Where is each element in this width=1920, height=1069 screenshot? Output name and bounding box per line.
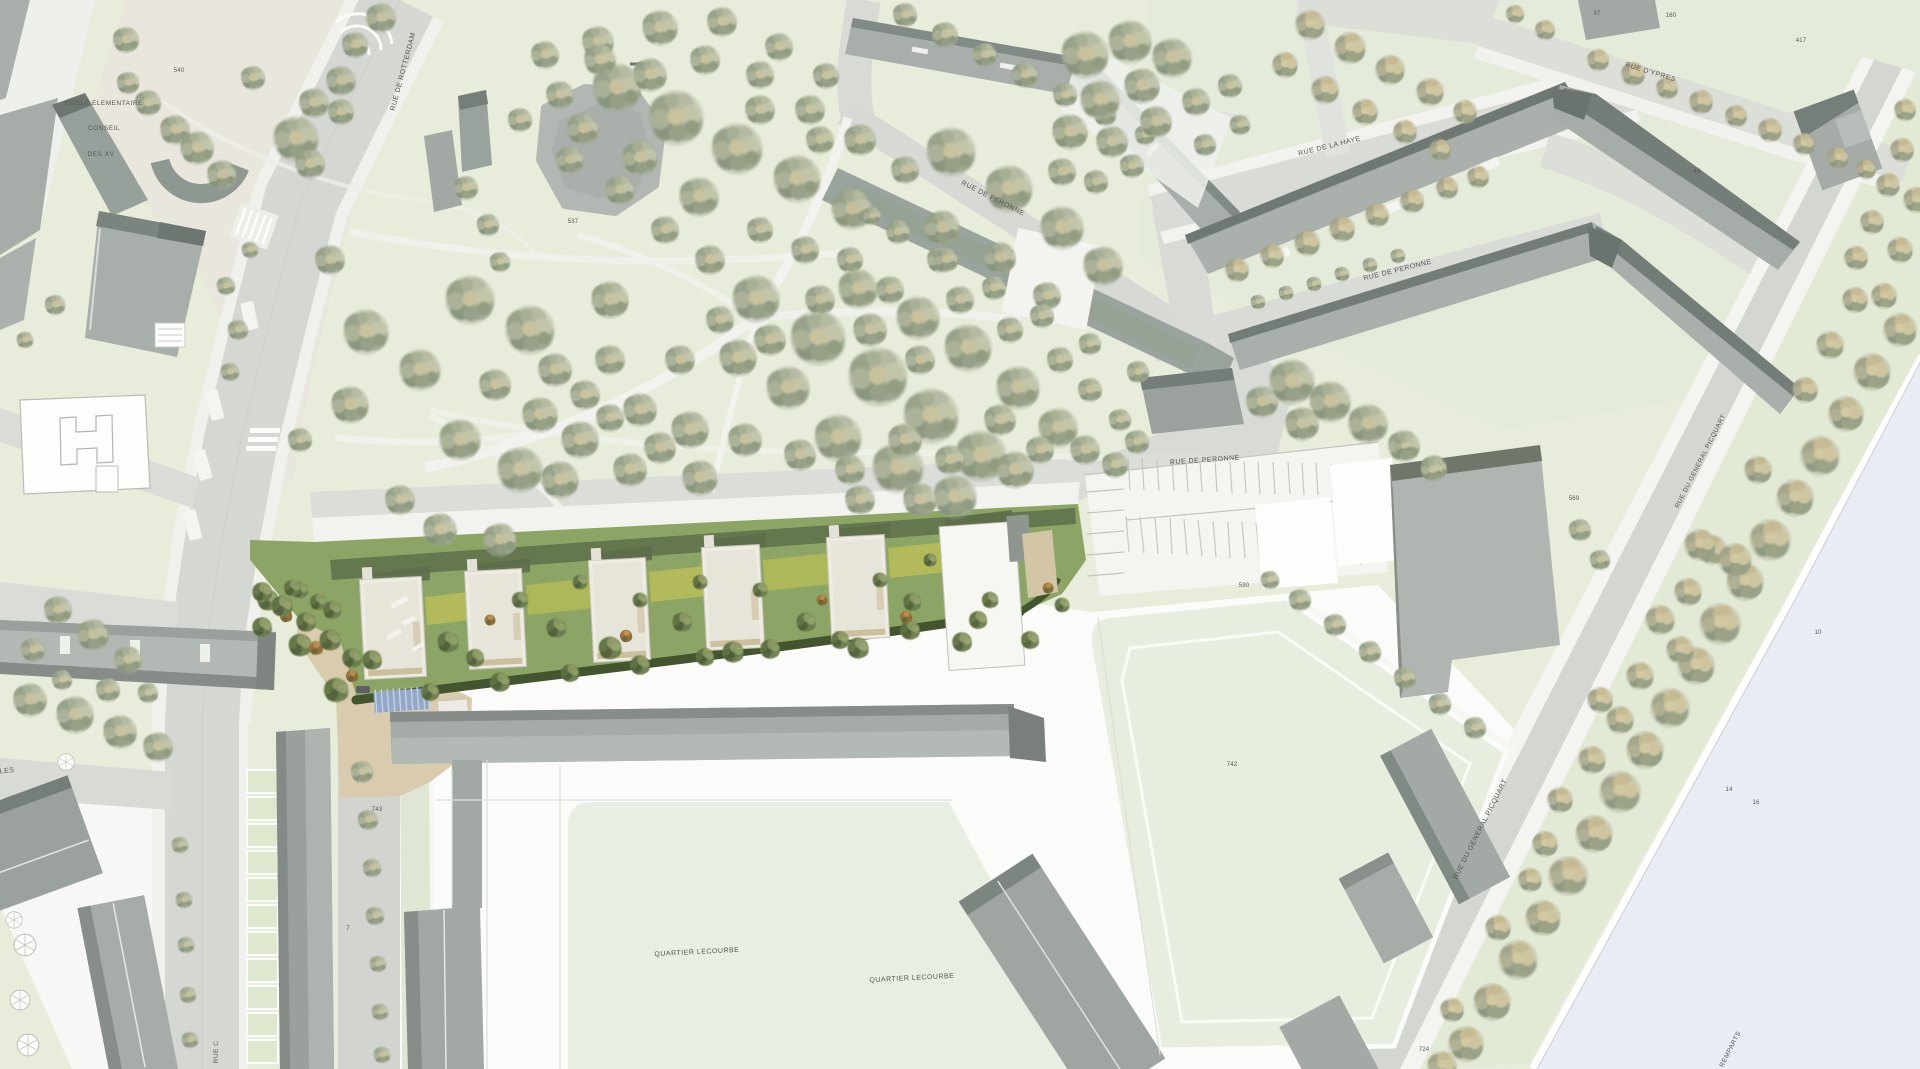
svg-text:16: 16 — [1752, 800, 1760, 806]
svg-text:7: 7 — [346, 926, 350, 932]
svg-text:540: 540 — [174, 68, 185, 74]
svg-text:160: 160 — [1666, 13, 1677, 19]
svg-text:CONSEIL: CONSEIL — [88, 125, 120, 132]
svg-text:37: 37 — [1593, 11, 1601, 17]
svg-text:742: 742 — [1227, 762, 1238, 768]
svg-text:RUE C: RUE C — [213, 1041, 220, 1064]
svg-text:DES XV: DES XV — [88, 151, 115, 158]
svg-text:569: 569 — [1569, 496, 1580, 502]
svg-text:743: 743 — [372, 807, 383, 813]
svg-text:724: 724 — [1419, 1047, 1430, 1053]
svg-text:537: 537 — [568, 219, 579, 225]
svg-text:590: 590 — [1239, 583, 1250, 589]
svg-text:44: 44 — [1693, 169, 1701, 175]
svg-text:10: 10 — [1814, 630, 1822, 636]
svg-text:14: 14 — [1725, 787, 1733, 793]
svg-text:417: 417 — [1796, 38, 1807, 44]
svg-text:ECOLE ELEMENTAIRE: ECOLE ELEMENTAIRE — [65, 100, 143, 107]
